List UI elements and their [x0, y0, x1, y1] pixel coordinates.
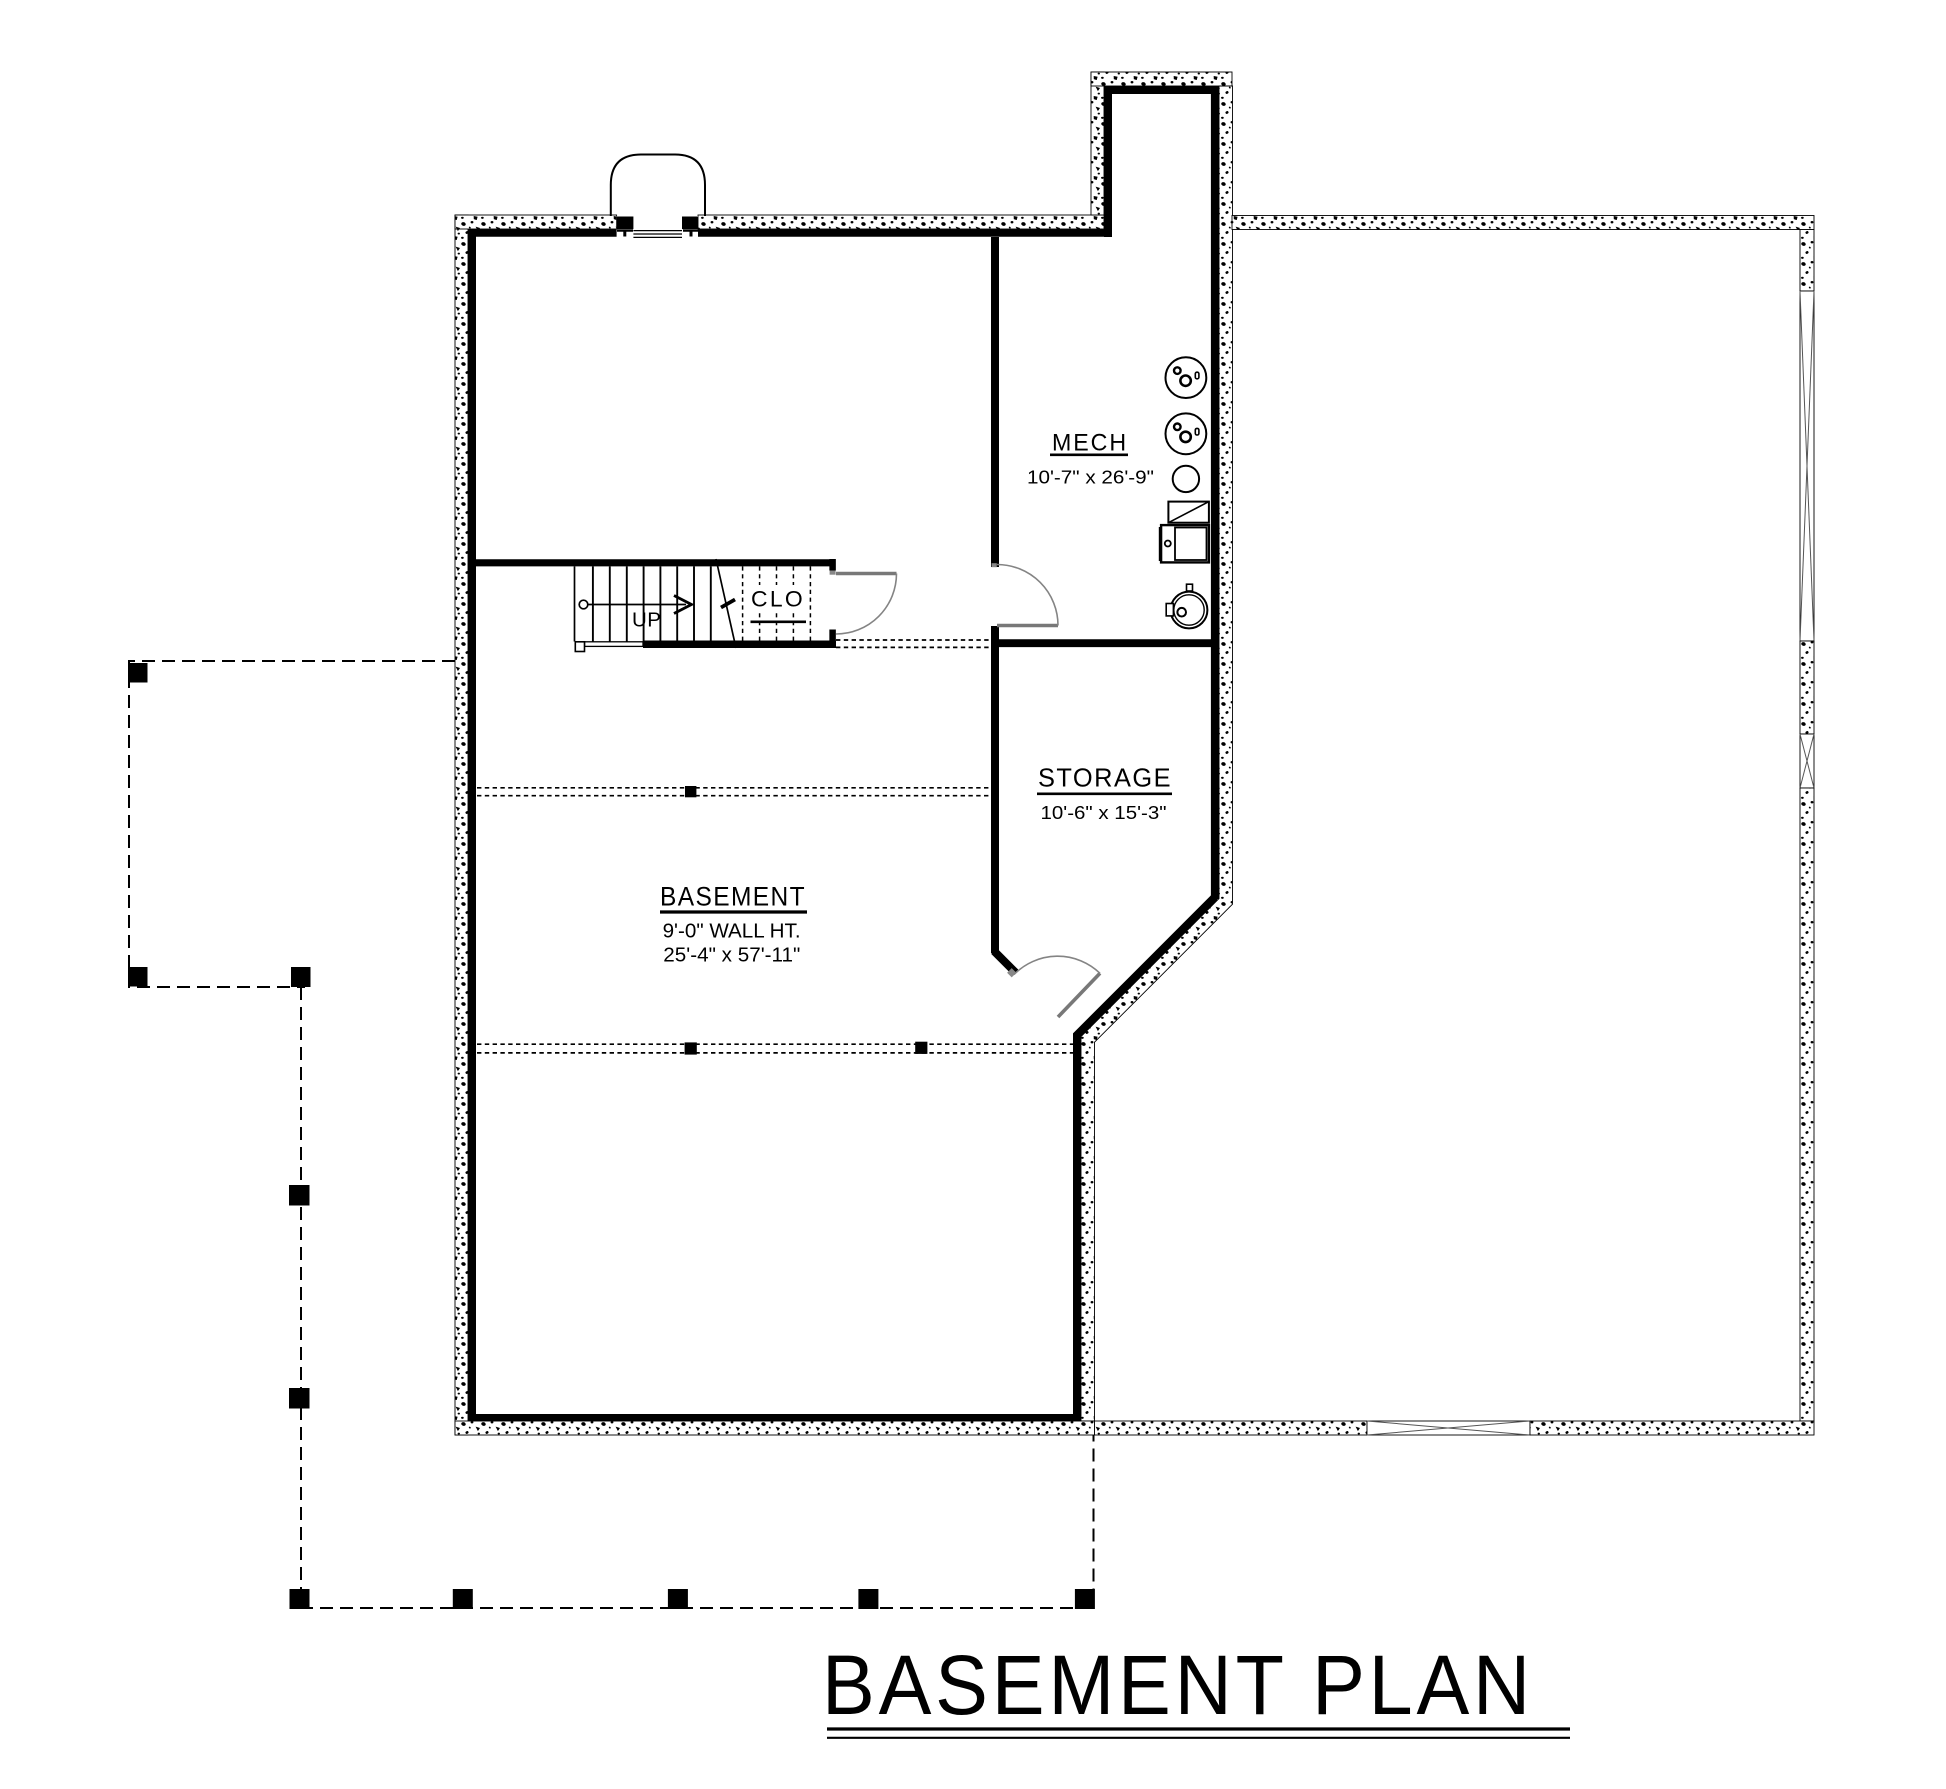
svg-text:9'-0" WALL HT.: 9'-0" WALL HT.: [663, 921, 801, 943]
svg-text:UP: UP: [632, 609, 661, 632]
svg-text:STORAGE: STORAGE: [1038, 763, 1172, 793]
svg-text:CLO: CLO: [751, 587, 805, 612]
svg-text:BASEMENT PLAN: BASEMENT PLAN: [822, 1638, 1534, 1732]
svg-text:10'-7" x 26'-9": 10'-7" x 26'-9": [1027, 467, 1154, 488]
svg-text:BASEMENT: BASEMENT: [660, 882, 806, 912]
svg-text:10'-6" x 15'-3": 10'-6" x 15'-3": [1041, 802, 1167, 823]
svg-text:25'-4" x 57'-11": 25'-4" x 57'-11": [663, 945, 800, 967]
svg-text:MECH: MECH: [1052, 430, 1128, 457]
